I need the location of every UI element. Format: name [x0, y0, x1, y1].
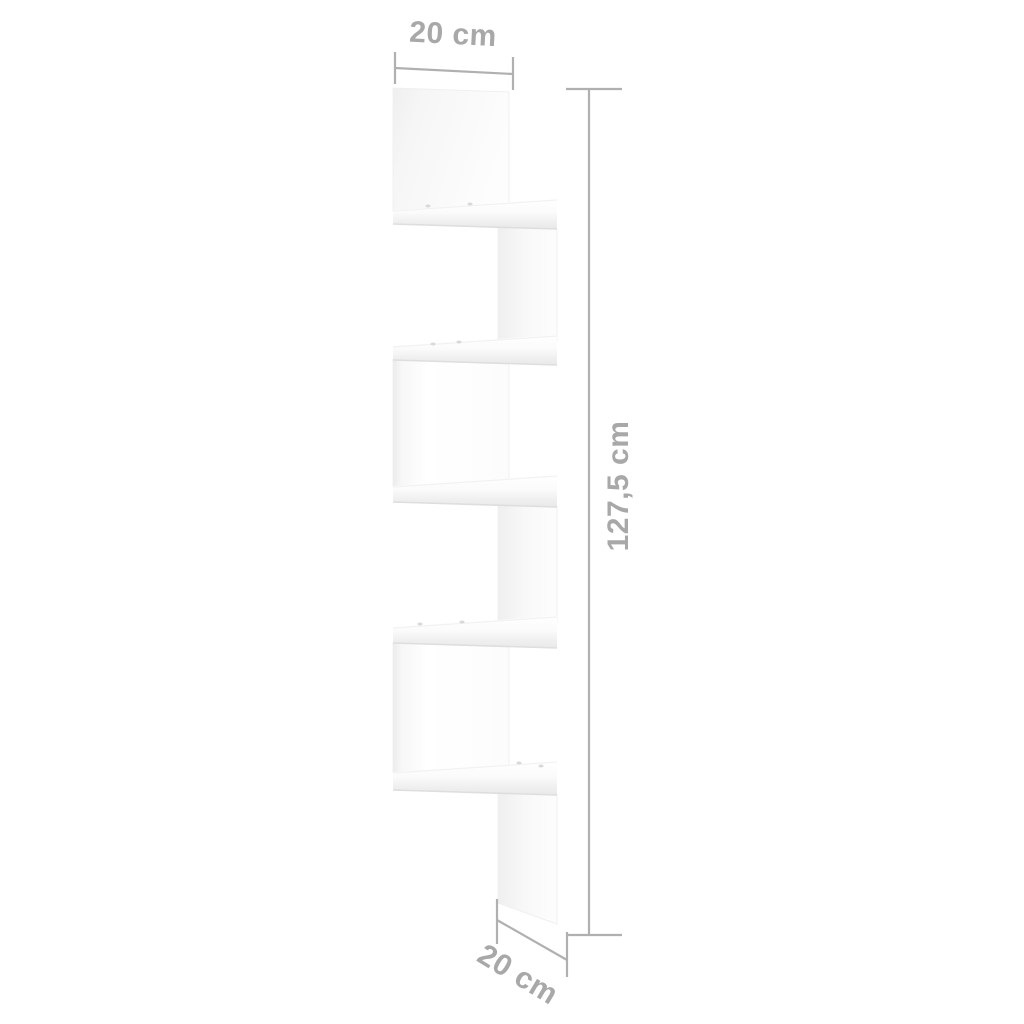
screw-hole-icon: [459, 621, 464, 624]
shelf-illustration: 20 cm 127,5 cm 20 cm: [0, 0, 1024, 1024]
top-width-dimension: 20 cm: [395, 16, 513, 90]
screw-hole-icon: [538, 765, 543, 768]
height-dimension: 127,5 cm: [566, 89, 635, 935]
right-panel-1: [498, 226, 557, 343]
screw-hole-icon: [456, 341, 461, 344]
shelf-drawing: [393, 88, 557, 924]
top-width-line: [395, 68, 513, 74]
left-panel-1: [393, 88, 509, 216]
product-dimension-diagram: 20 cm 127,5 cm 20 cm: [0, 0, 1024, 1024]
right-panel-3-bottom: [498, 792, 557, 924]
height-label: 127,5 cm: [602, 421, 635, 552]
screw-hole-icon: [417, 623, 422, 626]
right-panel-2: [498, 504, 557, 624]
screw-hole-icon: [467, 203, 472, 206]
screw-hole-icon: [430, 343, 435, 346]
screw-hole-icon: [516, 762, 521, 765]
left-panel-3: [393, 643, 509, 775]
top-width-label: 20 cm: [408, 16, 497, 54]
left-panel-2: [393, 360, 509, 489]
bottom-depth-label: 20 cm: [472, 938, 564, 1011]
screw-hole-icon: [425, 205, 430, 208]
